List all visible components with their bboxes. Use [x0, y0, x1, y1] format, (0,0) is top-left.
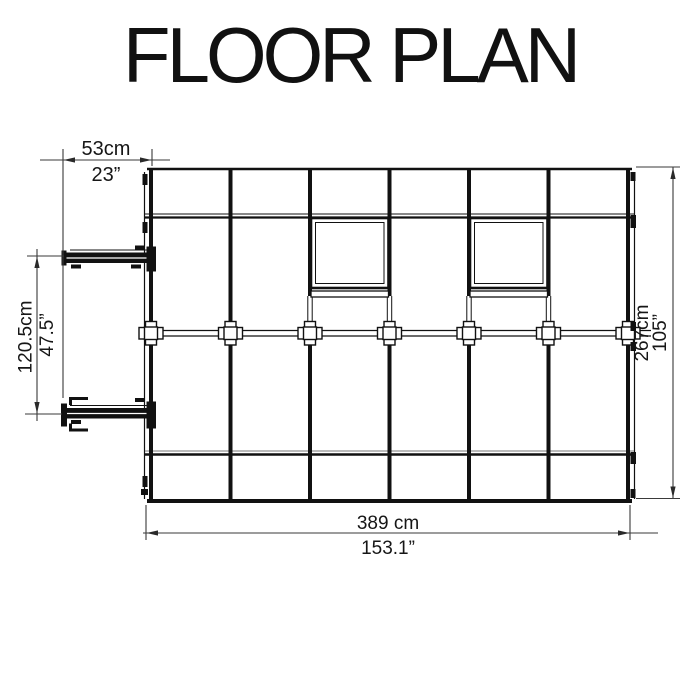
door-track-top [62, 246, 157, 272]
dimension-right: 267cm 105” [632, 167, 680, 499]
floor-plan-page: { "title": "FLOOR PLAN", "floor_plan": {… [0, 0, 700, 700]
cross-connector [298, 322, 322, 346]
vent-post-thin-sections [307, 296, 553, 326]
arrow-right-icon [140, 157, 152, 162]
cross-connector [378, 322, 402, 346]
roof-vent-2 [470, 218, 548, 297]
ridge-cross-connectors [139, 322, 640, 346]
cross-connector [457, 322, 481, 346]
dimension-right-imperial: 105” [650, 314, 671, 352]
arrow-up-icon [670, 168, 675, 180]
cross-connector [139, 322, 163, 346]
cross-connector [219, 322, 243, 346]
greenhouse-structure [61, 169, 651, 501]
floor-plan-drawing: 53cm 23” 120.5cm 47.5” 267cm 105” 389 cm… [0, 0, 700, 700]
arrow-down-icon [670, 487, 675, 499]
dimension-bottom-metric: 389 cm [357, 513, 419, 534]
dimension-left-metric: 120.5cm [16, 301, 37, 374]
arrow-down-icon [34, 402, 39, 414]
dimension-bottom: 389 cm 153.1” [143, 505, 658, 559]
door-track-bottom [61, 398, 156, 430]
roof-vent-1 [311, 218, 389, 297]
dimension-top-imperial: 23” [92, 164, 121, 186]
arrow-left-icon [147, 530, 159, 535]
dimension-left: 120.5cm 47.5” [16, 249, 65, 421]
dimension-bottom-imperial: 153.1” [361, 538, 415, 559]
arrow-left-icon [64, 157, 76, 162]
arrow-right-icon [618, 530, 630, 535]
dimension-left-imperial: 47.5” [37, 313, 58, 356]
cross-connector [537, 322, 561, 346]
dimension-top-metric: 53cm [82, 138, 131, 160]
arrow-up-icon [34, 257, 39, 269]
